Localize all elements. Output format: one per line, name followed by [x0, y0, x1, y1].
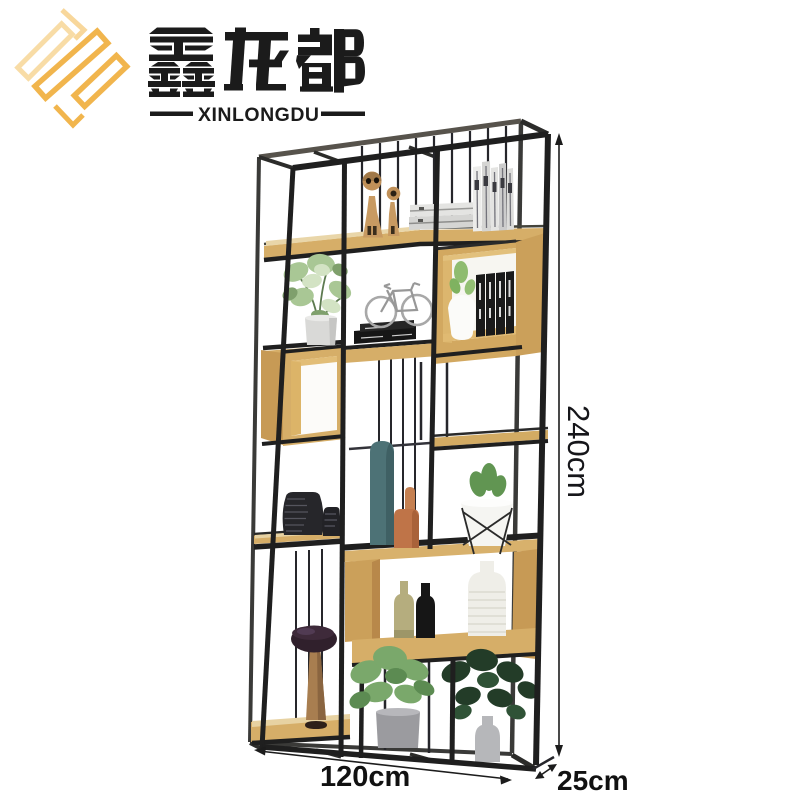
svg-text:25cm: 25cm	[557, 765, 629, 796]
svg-text:120cm: 120cm	[320, 761, 410, 793]
svg-text:240cm: 240cm	[561, 405, 596, 498]
svg-text:XINLONGDU: XINLONGDU	[198, 104, 320, 126]
